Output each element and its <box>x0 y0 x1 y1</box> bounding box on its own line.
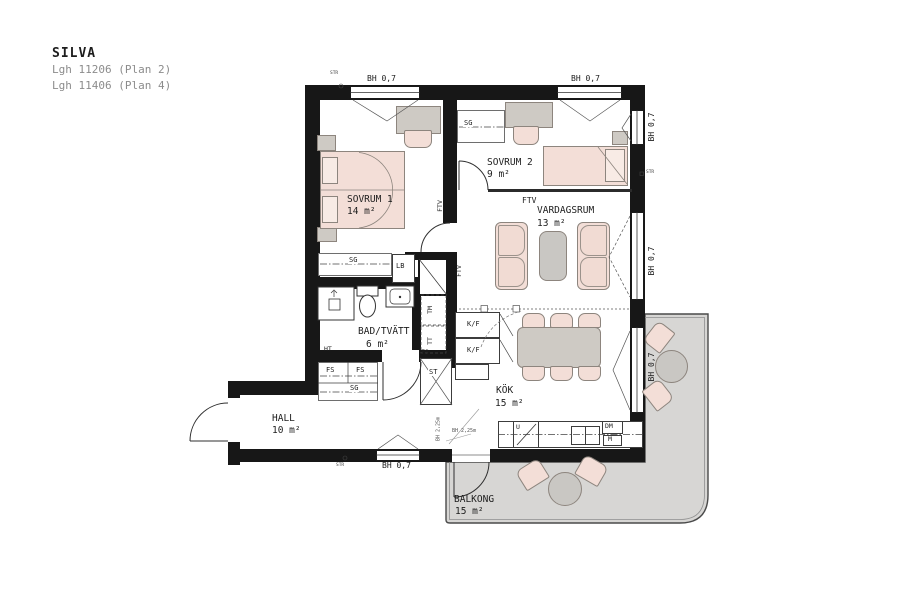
room-label-hall: HALL <box>272 414 295 424</box>
sovrum2-door-arc <box>459 161 488 190</box>
door-height-label: BH 2,25m <box>452 429 476 434</box>
window-height-label: BH 0,7 <box>648 113 656 142</box>
window-mullions <box>350 93 637 456</box>
room-area-hall: 10 m² <box>272 426 301 436</box>
toilet-bowl <box>360 295 376 317</box>
towel-dryer-label: HT <box>324 346 332 353</box>
room-label-sovrum2: SOVRUM 2 <box>487 158 533 168</box>
str-label: STR <box>330 72 338 77</box>
washer-label: TM <box>427 306 434 314</box>
fridge-label: K/F <box>467 347 480 354</box>
str-label: STR <box>646 171 654 176</box>
tv-outlet-label: FTV <box>456 265 463 277</box>
bathroom-fixtures <box>318 286 414 320</box>
window-height-label: BH 0,7 <box>571 75 600 83</box>
room-label-balkong: BALKONG <box>454 495 494 505</box>
shaft-diagonal <box>419 259 447 295</box>
apartment-id-line: Lgh 11206 (Plan 2) <box>52 64 171 75</box>
room-area-vardagsrum: 13 m² <box>537 219 566 229</box>
room-area-sovrum2: 9 m² <box>487 170 510 180</box>
room-area-kok: 15 m² <box>495 399 524 409</box>
window-height-label: BH 0,7 <box>648 353 656 382</box>
tv-outlet-label: FTV <box>437 200 444 212</box>
micro-label: M <box>608 436 612 443</box>
window-height-label: BH 0,7 <box>382 462 411 470</box>
cabinet-label: FS <box>421 349 429 356</box>
oven-label: U <box>516 424 520 431</box>
wardrobe-label: FS <box>356 367 364 374</box>
room-label-vardagsrum: VARDAGSRUM <box>537 206 594 216</box>
sovrum1-door-arc <box>421 223 450 252</box>
wardrobe-label: SG <box>349 385 359 392</box>
str-label: STR <box>336 464 344 469</box>
tv-outlet-label: FTV <box>522 197 536 205</box>
wardrobe-label: SG <box>348 257 358 264</box>
closet-label-lb: LB <box>396 263 404 270</box>
dryer-label: TT <box>427 337 434 345</box>
room-area-bad: 6 m² <box>366 340 389 350</box>
annotation-marks <box>339 84 644 460</box>
window-height-label: BH 0,7 <box>648 247 656 276</box>
floor-plan: SILVA Lgh 11206 (Plan 2) Lgh 11406 (Plan… <box>0 0 900 600</box>
bath-door-arc <box>383 362 421 400</box>
page-title: SILVA <box>52 47 96 60</box>
room-area-sovrum1: 14 m² <box>347 207 376 217</box>
window-sash-marks <box>353 100 631 449</box>
wardrobe-label: SG <box>463 120 473 127</box>
entry-door-arc <box>190 403 228 441</box>
room-label-sovrum1: SOVRUM 1 <box>347 195 393 205</box>
door-swings <box>190 161 490 497</box>
balcony-door-arc <box>454 462 489 497</box>
wardrobe-label: FS <box>326 367 334 374</box>
room-label-bad: BAD/TVÄTT <box>358 327 409 337</box>
door-height-label: BH 2,25m <box>437 417 442 441</box>
dishwasher-label: DM <box>605 423 613 430</box>
closet-label-st: ST <box>428 369 438 376</box>
duvet-fold <box>598 147 627 184</box>
window-height-label: BH 0,7 <box>367 75 396 83</box>
str-symbol <box>343 456 347 460</box>
apartment-id-line: Lgh 11406 (Plan 4) <box>52 80 171 91</box>
fridge-label: K/F <box>467 321 480 328</box>
wardrobe-centerlines <box>320 127 643 435</box>
room-label-kok: KÖK <box>496 386 513 396</box>
str-symbol <box>339 84 343 88</box>
str-symbol <box>640 172 644 176</box>
room-area-balkong: 15 m² <box>455 507 484 517</box>
